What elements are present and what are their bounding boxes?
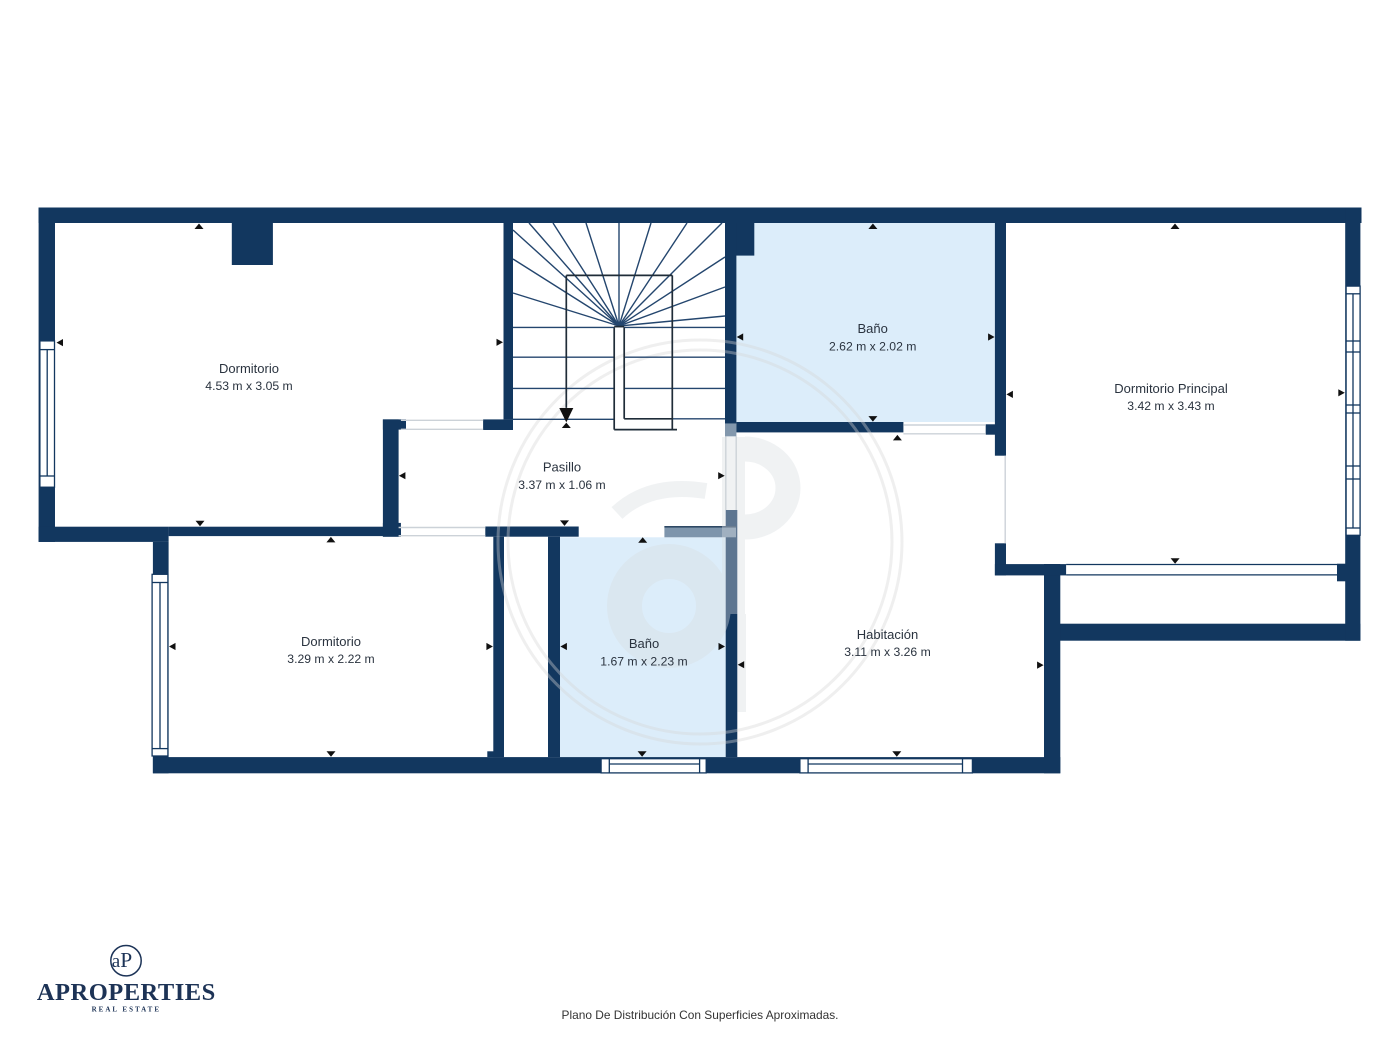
svg-text:Baño: Baño [858, 321, 888, 336]
svg-text:Plano De Distribución Con Supe: Plano De Distribución Con Superficies Ap… [562, 1008, 839, 1022]
svg-text:3.37 m x 1.06 m: 3.37 m x 1.06 m [518, 478, 605, 492]
svg-text:Habitación: Habitación [857, 627, 918, 642]
svg-text:Baño: Baño [629, 636, 659, 651]
svg-text:Dormitorio: Dormitorio [301, 634, 361, 649]
svg-text:Dormitorio: Dormitorio [219, 361, 279, 376]
svg-text:Pasillo: Pasillo [543, 460, 581, 475]
svg-text:APROPERTIES: APROPERTIES [37, 979, 216, 1006]
svg-text:3.29 m x 2.22 m: 3.29 m x 2.22 m [287, 652, 374, 666]
svg-text:P: P [120, 948, 132, 972]
svg-text:4.53 m x 3.05 m: 4.53 m x 3.05 m [205, 379, 292, 393]
svg-text:Dormitorio Principal: Dormitorio Principal [1114, 381, 1228, 396]
svg-text:REAL ESTATE: REAL ESTATE [92, 1006, 161, 1014]
svg-text:3.11 m x 3.26 m: 3.11 m x 3.26 m [844, 645, 930, 659]
svg-text:3.42 m x 3.43 m: 3.42 m x 3.43 m [1127, 399, 1214, 413]
svg-text:1.67 m x 2.23 m: 1.67 m x 2.23 m [600, 654, 687, 668]
svg-text:2.62 m x 2.02 m: 2.62 m x 2.02 m [829, 339, 916, 353]
